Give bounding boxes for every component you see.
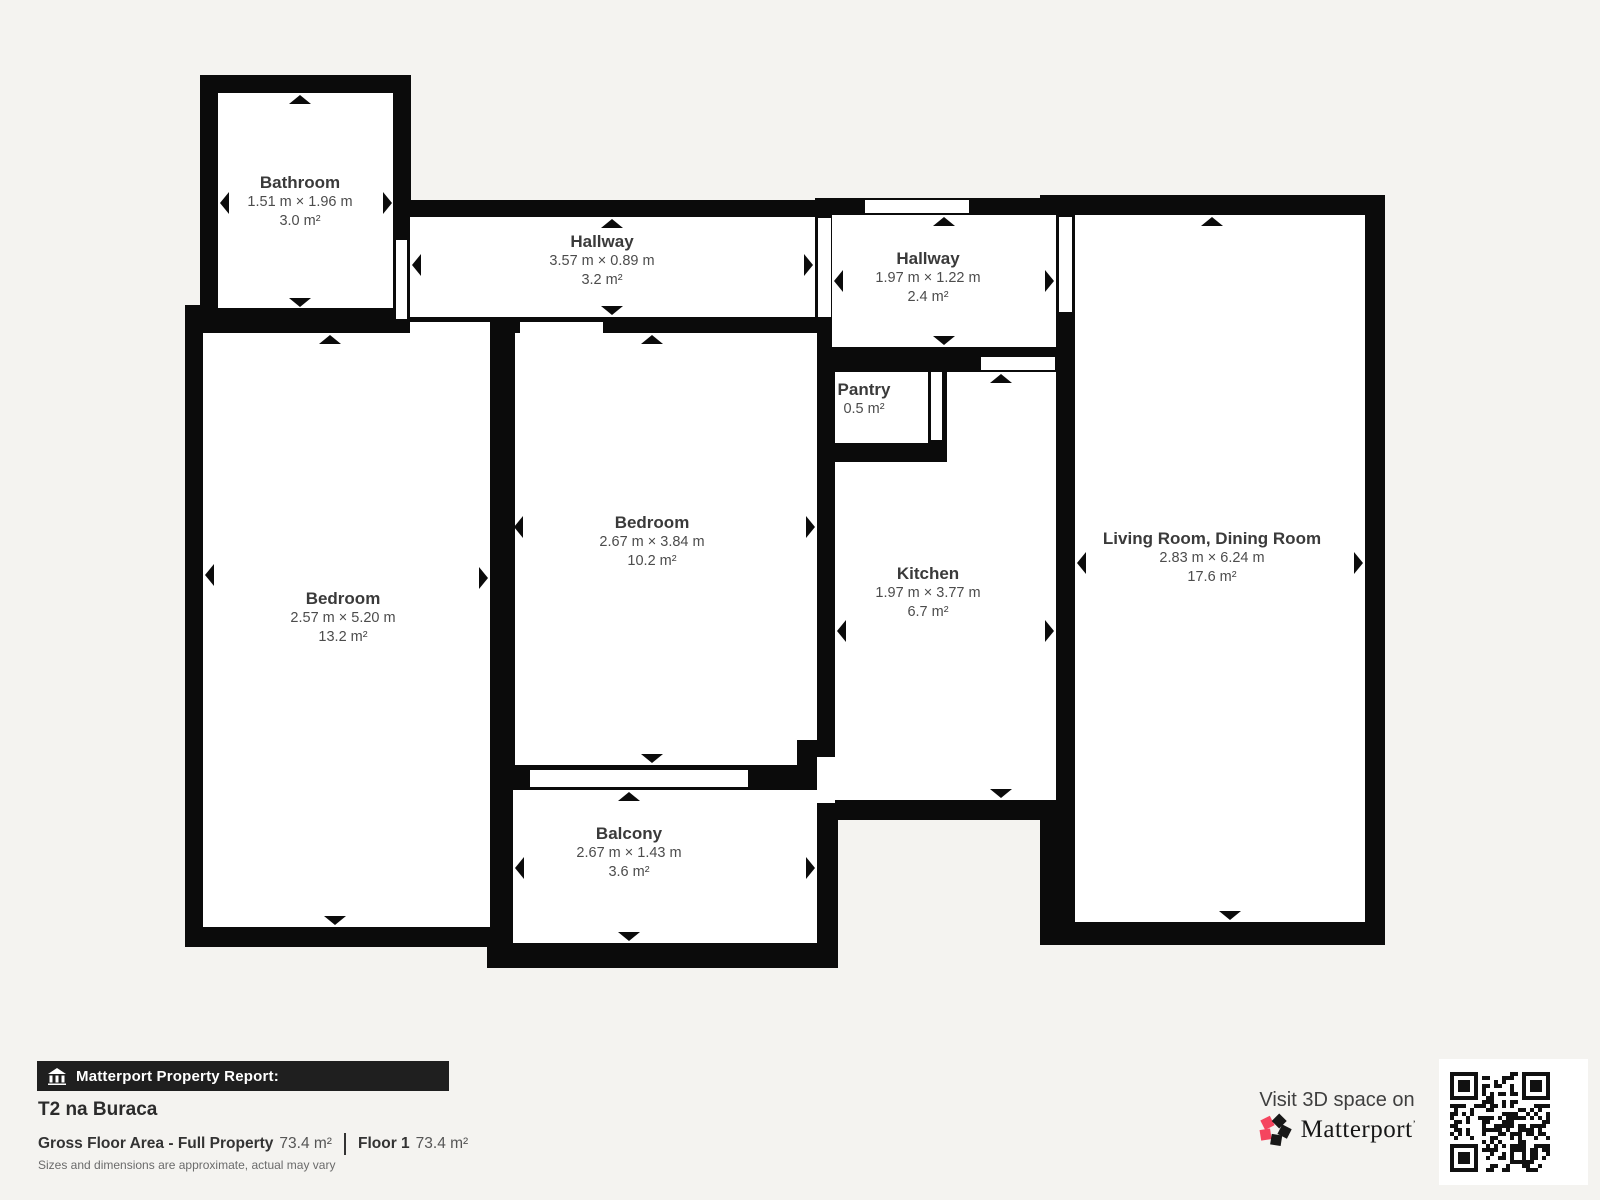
matterport-brand: Matterport’ (1258, 1113, 1417, 1147)
qr-code (1450, 1072, 1550, 1172)
room-floor-hallway-top (410, 217, 815, 317)
gross-area-label: Gross Floor Area - Full Property (38, 1135, 273, 1153)
wall-jog (797, 740, 817, 768)
room-floor-bathroom (218, 93, 393, 308)
door-bedroom-left (410, 322, 490, 333)
matterport-pinwheel-logo (1258, 1113, 1292, 1147)
room-floor-pantry (835, 372, 928, 443)
door-hallway-top-entry (865, 200, 969, 213)
room-floor-bedroom-center (515, 333, 817, 765)
metrics-divider (344, 1133, 346, 1155)
room-floor-bedroom-left (203, 333, 490, 927)
gross-area-value: 73.4 m² (279, 1135, 332, 1153)
visit-3d-label: Visit 3D space on (1259, 1089, 1414, 1112)
building-icon (48, 1068, 66, 1085)
window-balcony (530, 770, 748, 787)
floorplan-report-page: Bathroom1.51 m × 1.96 m3.0 m² Hallway3.5… (0, 0, 1600, 1200)
room-floor-kitchen-upper (947, 372, 1056, 467)
matterport-wordmark: Matterport’ (1301, 1116, 1417, 1144)
door-bathroom (396, 240, 407, 319)
report-bar-label: Matterport Property Report: (76, 1068, 279, 1085)
door-pantry (931, 372, 942, 440)
disclaimer-text: Sizes and dimensions are approximate, ac… (38, 1158, 335, 1172)
floorplan-drawing (0, 0, 1600, 1000)
door-bedroom-center (520, 322, 603, 333)
floor-value: 73.4 m² (416, 1135, 469, 1153)
report-title-bar: Matterport Property Report: (37, 1061, 449, 1091)
door-kitchen (981, 357, 1055, 370)
door-living-room (1059, 217, 1072, 312)
property-name: T2 na Buraca (38, 1099, 157, 1121)
room-floor-kitchen (835, 462, 1056, 800)
room-floor-balcony (513, 790, 817, 943)
door-hallway-to-hallway (818, 218, 831, 317)
qr-card (1439, 1059, 1588, 1185)
room-floors (203, 93, 1365, 943)
room-floor-living (1075, 215, 1365, 922)
area-metrics: Gross Floor Area - Full Property 73.4 m²… (38, 1133, 468, 1155)
door-kitchen-balcony (817, 757, 835, 803)
floor-label: Floor 1 (358, 1135, 410, 1153)
room-floor-hallway-right (832, 215, 1056, 347)
